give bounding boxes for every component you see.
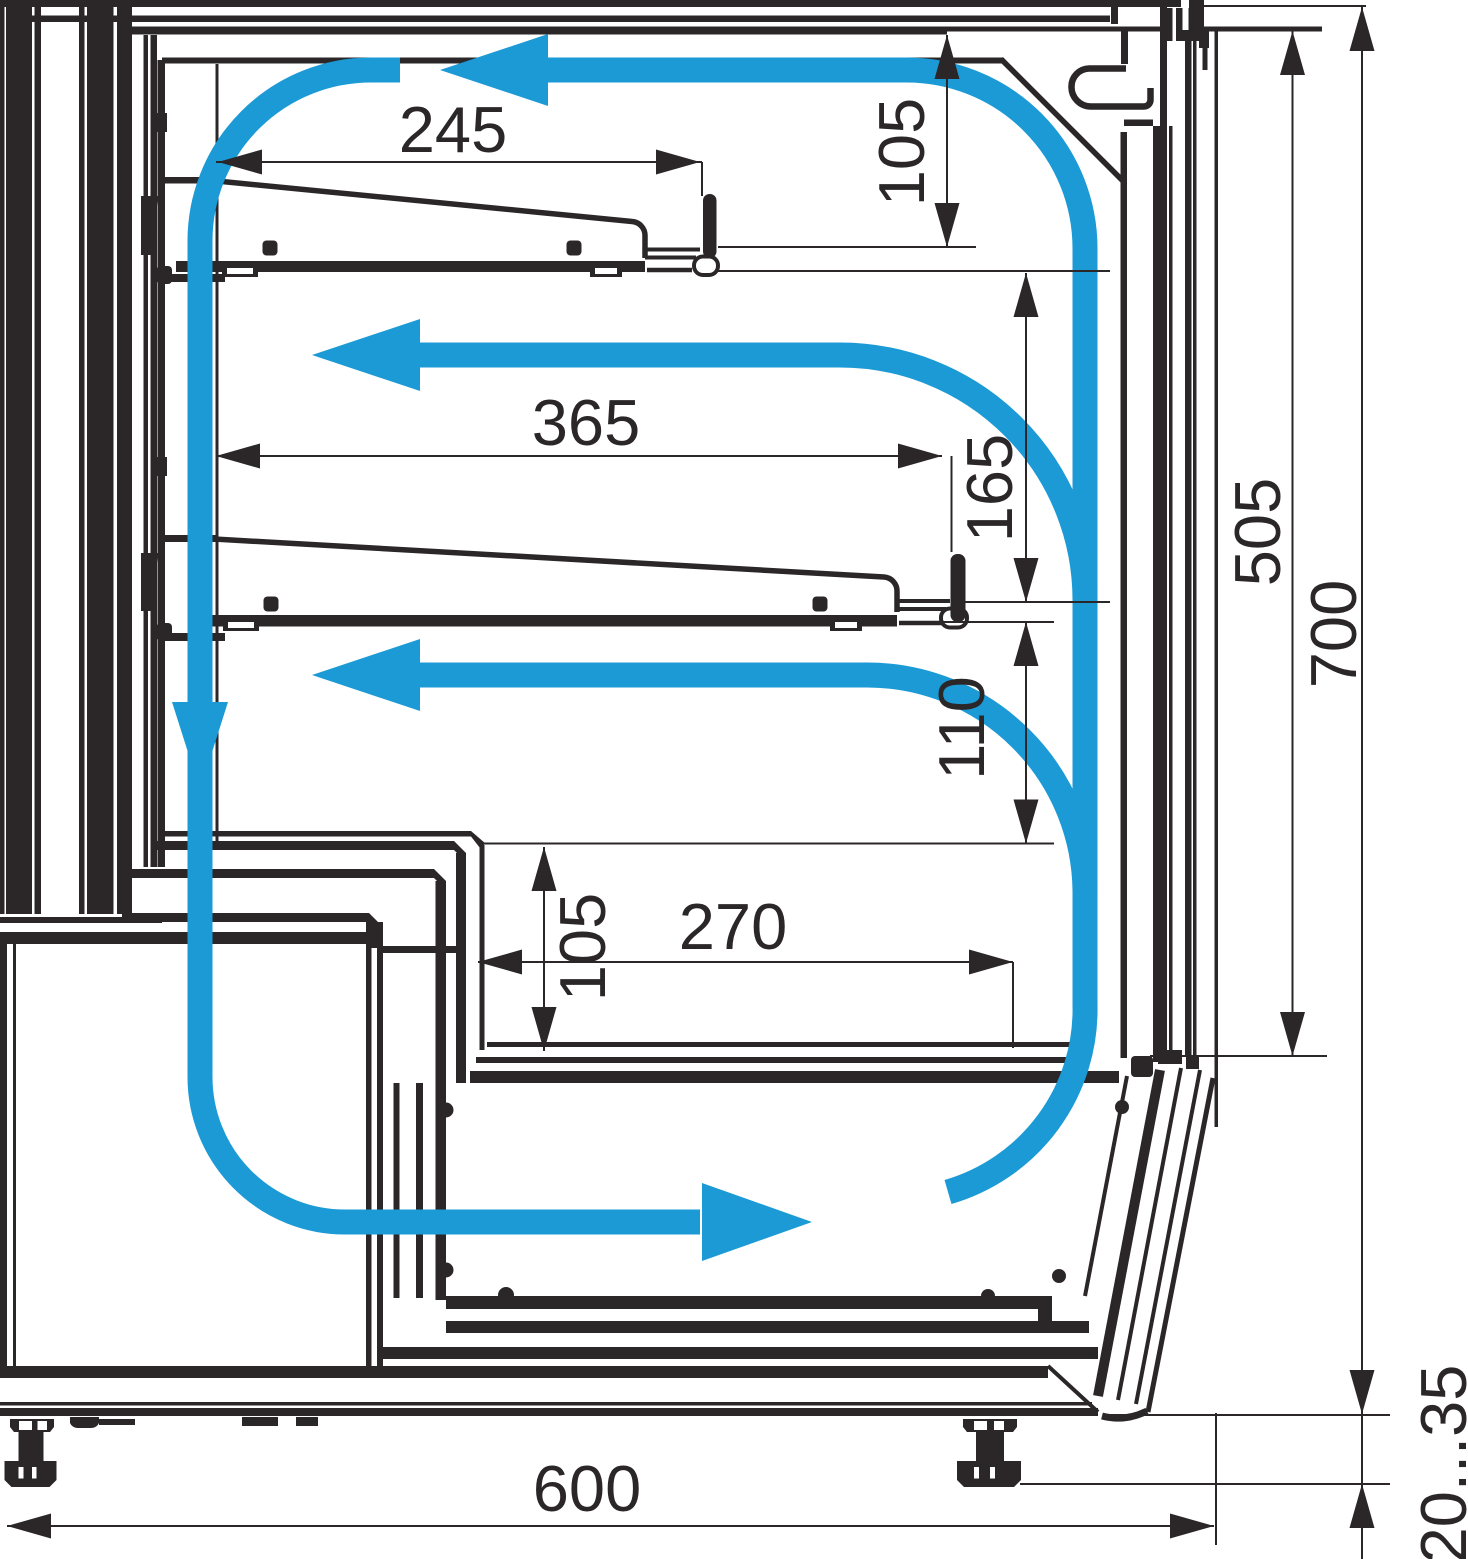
- svg-text:165: 165: [953, 434, 1026, 542]
- svg-text:20...35: 20...35: [1407, 1365, 1468, 1559]
- svg-text:505: 505: [1221, 478, 1294, 586]
- svg-text:245: 245: [399, 93, 507, 166]
- svg-text:600: 600: [533, 1452, 641, 1525]
- svg-text:105: 105: [546, 893, 619, 1001]
- svg-text:105: 105: [865, 98, 938, 206]
- svg-text:270: 270: [679, 890, 787, 963]
- svg-text:110: 110: [925, 676, 998, 780]
- svg-text:365: 365: [532, 386, 640, 459]
- svg-text:700: 700: [1297, 580, 1370, 688]
